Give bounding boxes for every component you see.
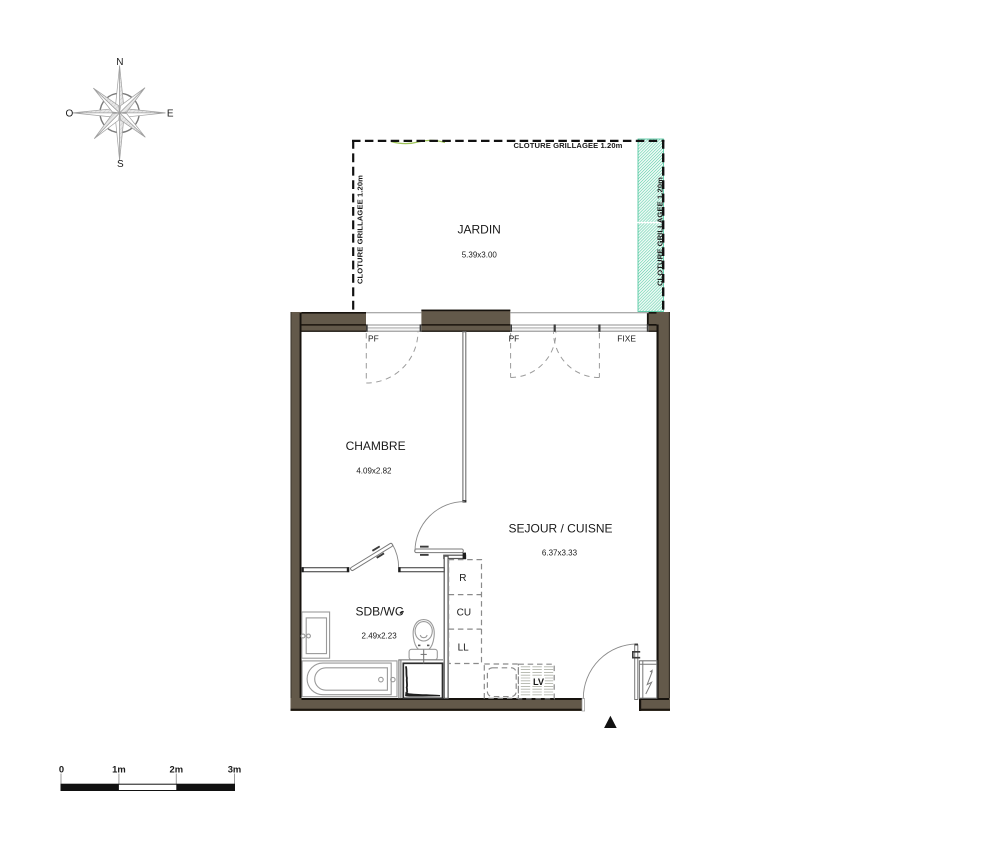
svg-text:E: E (167, 109, 174, 120)
svg-text:R: R (459, 573, 466, 584)
svg-text:FIXE: FIXE (617, 333, 636, 343)
svg-text:PF: PF (509, 333, 520, 343)
svg-text:N: N (116, 57, 123, 68)
svg-text:CLOTURE GRILLAGEE 1.20m: CLOTURE GRILLAGEE 1.20m (655, 177, 664, 286)
svg-text:LV: LV (533, 677, 545, 687)
svg-text:CLOTURE GRILLAGEE 1.20m: CLOTURE GRILLAGEE 1.20m (513, 141, 622, 150)
svg-text:SEJOUR / CUISNE: SEJOUR / CUISNE (508, 521, 612, 535)
svg-text:SDB/WC: SDB/WC (356, 604, 404, 618)
svg-text:3m: 3m (228, 764, 242, 775)
svg-text:PF: PF (368, 333, 379, 343)
svg-text:2m: 2m (170, 764, 184, 775)
svg-text:6.37x3.33: 6.37x3.33 (542, 549, 578, 558)
svg-text:2.49x2.23: 2.49x2.23 (362, 631, 398, 640)
svg-text:LL: LL (458, 643, 470, 654)
svg-text:4.09x2.82: 4.09x2.82 (356, 467, 392, 476)
svg-text:CLOTURE GRILLAGEE 1.20m: CLOTURE GRILLAGEE 1.20m (355, 175, 364, 284)
svg-text:JARDIN: JARDIN (458, 223, 501, 237)
svg-text:O: O (66, 109, 74, 120)
svg-text:CU: CU (457, 608, 471, 619)
svg-text:CHAMBRE: CHAMBRE (346, 439, 406, 453)
svg-text:5.39x3.00: 5.39x3.00 (462, 251, 498, 260)
svg-text:0: 0 (59, 764, 64, 775)
svg-text:1m: 1m (112, 764, 126, 775)
svg-text:S: S (117, 159, 124, 170)
